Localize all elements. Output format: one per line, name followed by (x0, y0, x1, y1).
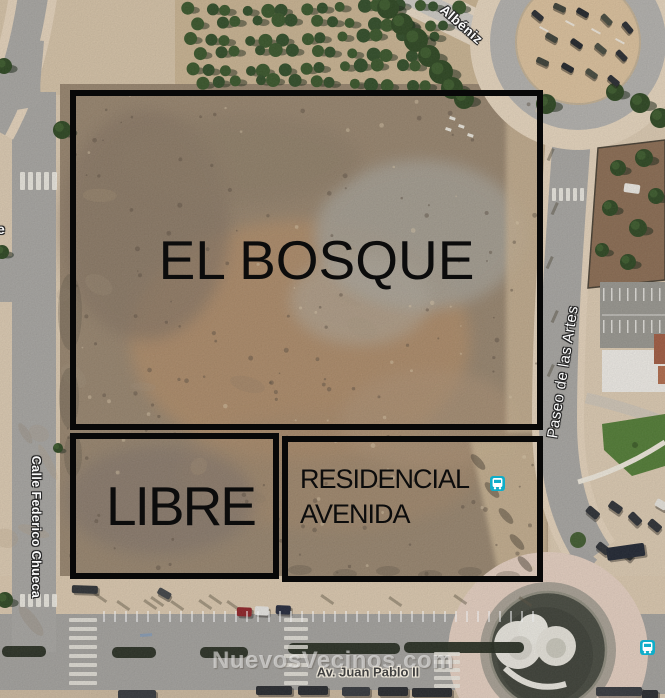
bus-stop-icon[interactable] (490, 476, 505, 491)
zone-label-el-bosque: EL BOSQUE (159, 228, 475, 292)
street-label-av-juan-pablo-ii: Av. Juan Pablo II (317, 665, 420, 680)
map-canvas[interactable]: NuevosVecinos.com Albéniz Paseo de las A… (0, 0, 665, 698)
bus-stop-icon[interactable] (640, 640, 655, 655)
zone-box-el-bosque: EL BOSQUE (70, 90, 543, 430)
zone-label-avenida: AVENIDA (300, 497, 537, 532)
zone-box-residencial-avenida: RESIDENCIAL AVENIDA (282, 436, 543, 582)
street-label-partial: e (0, 221, 5, 237)
zone-box-libre: LIBRE (70, 433, 279, 579)
zone-label-libre: LIBRE (106, 474, 255, 538)
street-label-calle-federico-chueca: Calle Federico Chueca (29, 456, 43, 598)
